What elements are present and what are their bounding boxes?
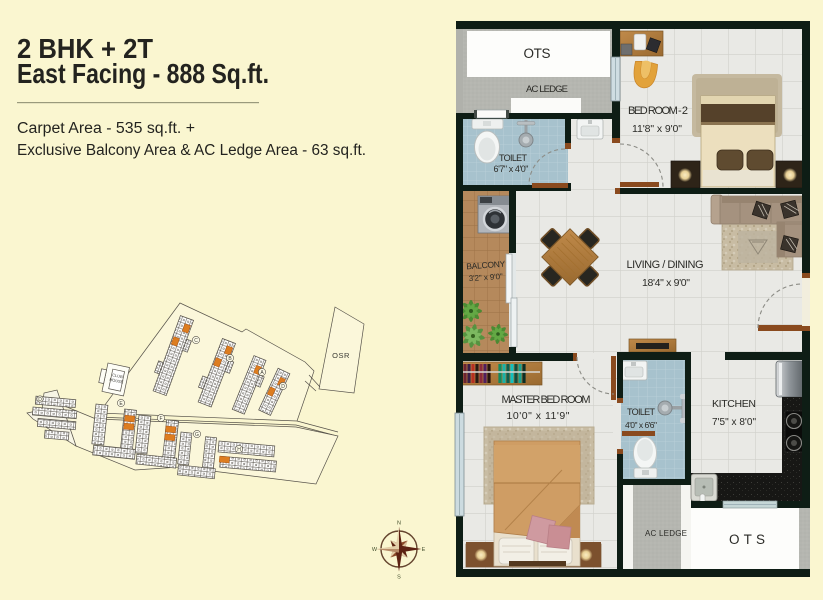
svg-text:11'8" x 9'0": 11'8" x 9'0" <box>632 123 682 135</box>
svg-text:MASTER BED ROOM: MASTER BED ROOM <box>502 394 591 406</box>
svg-text:10'0" x 11'9": 10'0" x 11'9" <box>507 410 570 422</box>
svg-text:TOILET: TOILET <box>499 153 528 163</box>
svg-text:F: F <box>159 416 162 422</box>
svg-text:TOILET: TOILET <box>627 407 656 417</box>
svg-text:D: D <box>281 384 285 390</box>
svg-text:6'7" x 4'0": 6'7" x 4'0" <box>494 164 529 174</box>
svg-text:BED ROOM - 2: BED ROOM - 2 <box>628 105 688 117</box>
svg-text:East Facing - 888 Sq.ft.: East Facing - 888 Sq.ft. <box>17 58 269 89</box>
svg-text:C: C <box>194 338 198 344</box>
svg-text:AC LEDGE: AC LEDGE <box>526 84 568 95</box>
svg-text:H: H <box>237 447 241 453</box>
svg-text:KITCHEN: KITCHEN <box>712 398 756 410</box>
svg-text:OSR: OSR <box>332 351 350 360</box>
svg-text:LIVING / DINING: LIVING / DINING <box>627 259 704 271</box>
svg-text:D: D <box>38 397 42 403</box>
svg-text:18'4" x 9'0": 18'4" x 9'0" <box>642 277 690 289</box>
svg-text:Carpet Area - 535 sq.ft. +: Carpet Area - 535 sq.ft. + <box>17 120 195 137</box>
svg-text:G: G <box>195 432 199 438</box>
svg-text:O T S: O T S <box>524 46 551 61</box>
svg-text:O T S: O T S <box>729 532 765 547</box>
svg-text:Exclusive Balcony Area & AC Le: Exclusive Balcony Area & AC Ledge Area -… <box>17 142 366 159</box>
svg-text:4'0" x 6'6": 4'0" x 6'6" <box>625 420 657 430</box>
svg-text:E: E <box>422 547 426 553</box>
svg-text:7'5" x 8'0": 7'5" x 8'0" <box>712 417 756 428</box>
svg-text:S: S <box>397 575 401 581</box>
svg-text:W: W <box>372 547 378 553</box>
svg-text:N: N <box>397 521 401 527</box>
svg-text:AC LEDGE: AC LEDGE <box>645 529 687 538</box>
